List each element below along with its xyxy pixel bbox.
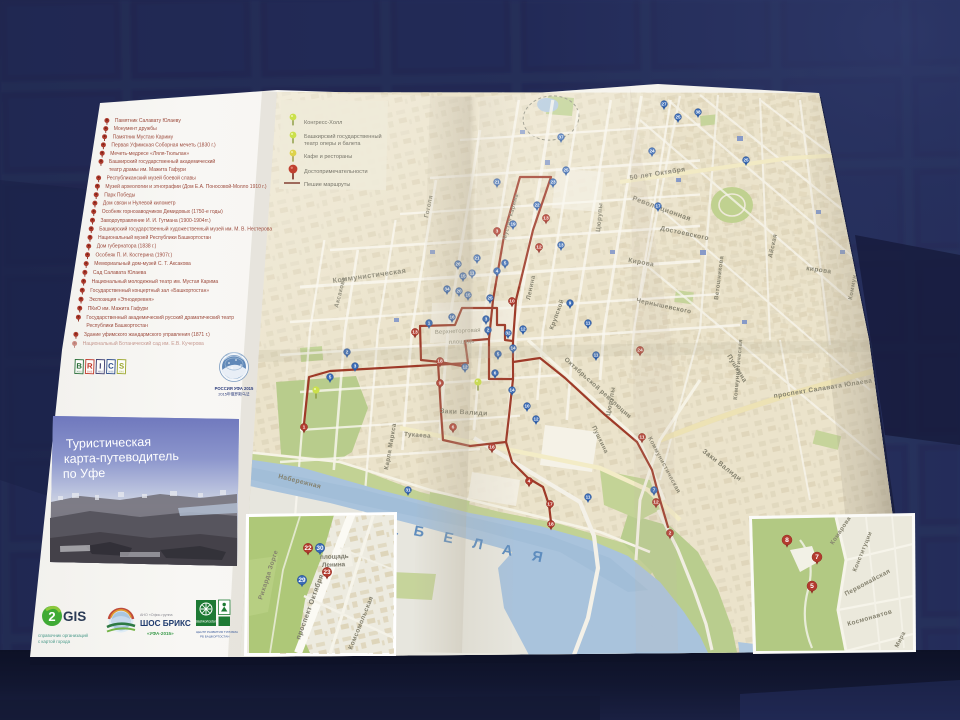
svg-text:Музей археологии и этнографии: Музей археологии и этнографии (Дом Е.А. … <box>105 183 267 190</box>
svg-text:Туристическая: Туристическая <box>66 435 151 451</box>
svg-text:РОССИЯ УФА 2015: РОССИЯ УФА 2015 <box>215 386 254 391</box>
svg-text:11: 11 <box>586 320 591 325</box>
svg-text:Парк Победы: Парк Победы <box>104 192 136 198</box>
svg-text:31: 31 <box>405 487 411 492</box>
svg-text:B: B <box>76 362 82 371</box>
svg-text:12: 12 <box>533 416 539 421</box>
svg-text:Bashkortostan: Bashkortostan <box>195 620 216 624</box>
svg-text:РБ БАШКОРТОСТАН: РБ БАШКОРТОСТАН <box>200 635 229 639</box>
svg-text:справочник организаций: справочник организаций <box>38 633 89 638</box>
svg-text:Особняк П. И. Костерина (1907г: Особняк П. И. Костерина (1907г.) <box>96 252 173 258</box>
svg-text:Башкирский государственный: Башкирский государственный <box>304 133 382 140</box>
svg-text:Республиканский музей боевой с: Республиканский музей боевой славы <box>107 175 197 182</box>
svg-text:театр драмы им. Мажита Гафури: театр драмы им. Мажита Гафури <box>109 167 186 173</box>
svg-text:17: 17 <box>547 502 553 508</box>
svg-text:Пешие маршруты: Пешие маршруты <box>304 182 350 188</box>
svg-text:Здание уфимского жандармского: Здание уфимского жандармского управления… <box>84 332 210 338</box>
svg-text:«УФА-2015»: «УФА-2015» <box>147 631 174 636</box>
svg-text:2015: 2015 <box>87 370 93 373</box>
svg-text:3: 3 <box>354 363 357 368</box>
svg-text:38: 38 <box>695 109 701 114</box>
svg-text:Первая Уфимская Соборная мечет: Первая Уфимская Соборная мечеть (1830 г.… <box>111 143 216 149</box>
svg-text:площадь: площадь <box>320 553 349 561</box>
svg-text:8: 8 <box>785 537 789 544</box>
svg-text:S: S <box>119 362 125 371</box>
svg-text:C: C <box>108 362 114 371</box>
svg-text:30: 30 <box>316 545 324 552</box>
svg-text:Национальный молодежный театр: Национальный молодежный театр им. Мустая… <box>92 278 219 285</box>
svg-text:2015: 2015 <box>108 370 114 373</box>
svg-text:25: 25 <box>675 114 681 119</box>
svg-text:2: 2 <box>48 609 55 624</box>
svg-text:4: 4 <box>528 479 531 485</box>
svg-text:22: 22 <box>304 545 312 552</box>
svg-text:ЦЕНТР РАЗВИТИЯ ТУРИЗМА: ЦЕНТР РАЗВИТИЯ ТУРИЗМА <box>196 630 238 634</box>
svg-text:5: 5 <box>810 583 814 590</box>
svg-text:Государственный концертный зал: Государственный концертный зал «Башкорто… <box>90 287 209 294</box>
svg-text:ШОС БРИКС: ШОС БРИКС <box>140 619 191 628</box>
svg-text:9: 9 <box>569 300 572 305</box>
svg-text:Заводоуправление И. И. Гутмана: Заводоуправление И. И. Гутмана (1900-190… <box>101 218 212 224</box>
svg-text:АНО «Офис-группа: АНО «Офис-группа <box>140 613 173 617</box>
svg-text:23: 23 <box>323 569 331 576</box>
svg-text:R: R <box>87 362 93 371</box>
svg-text:29: 29 <box>298 577 306 584</box>
svg-text:Кафе и рестораны: Кафе и рестораны <box>304 154 352 160</box>
svg-text:Башкирский государственный худ: Башкирский государственный художественны… <box>99 225 272 232</box>
svg-text:Монумент дружбы: Монумент дружбы <box>114 126 157 132</box>
svg-text:10: 10 <box>524 403 530 408</box>
svg-text:GIS: GIS <box>63 609 86 624</box>
svg-text:Национальный музей Республики: Национальный музей Республики Башкортост… <box>98 234 211 241</box>
svg-text:5: 5 <box>329 374 332 379</box>
svg-text:Дом связи и Нулевой километр: Дом связи и Нулевой километр <box>103 200 176 207</box>
svg-text:Мемориальный дом-музей С. Т. А: Мемориальный дом-музей С. Т. Аксакова <box>94 260 191 267</box>
svg-text:по Уфе: по Уфе <box>63 466 106 481</box>
svg-text:27: 27 <box>661 101 667 106</box>
svg-text:с картой города: с картой города <box>38 639 71 644</box>
svg-text:Особняк горнозаводчиков Демидо: Особняк горнозаводчиков Демидовых (1750-… <box>102 209 223 215</box>
svg-text:Памятник Салавату Юлаеву: Памятник Салавату Юлаеву <box>115 118 181 124</box>
svg-text:Государственный академический: Государственный академический русский др… <box>86 314 234 321</box>
svg-text:Национальный Ботанический сад: Национальный Ботанический сад им. Е.В. К… <box>83 340 204 347</box>
svg-text:Сад Салавата Юлаева: Сад Салавата Юлаева <box>93 270 146 276</box>
svg-text:12: 12 <box>520 326 526 331</box>
svg-text:2015: 2015 <box>76 370 82 373</box>
svg-text:2015: 2015 <box>119 370 125 373</box>
svg-text:11: 11 <box>586 494 591 499</box>
svg-text:Конгресс-Холл: Конгресс-Холл <box>304 120 342 126</box>
svg-text:2015年俄罗斯乌法: 2015年俄罗斯乌法 <box>218 392 249 397</box>
svg-text:25: 25 <box>743 157 749 162</box>
svg-text:Республики Башкортостан: Республики Башкортостан <box>86 323 148 329</box>
svg-text:Экспозиция «Этнодеревня»: Экспозиция «Этнодеревня» <box>89 297 154 303</box>
svg-text:18: 18 <box>548 522 554 528</box>
svg-text:Дом губернатора (1838 г.): Дом губернатора (1838 г.) <box>97 244 157 250</box>
svg-text:Мечеть-медресе «Ляля-Тюльпан»: Мечеть-медресе «Ляля-Тюльпан» <box>110 151 189 157</box>
svg-text:Башкирский государственный ака: Башкирский государственный академический <box>109 158 215 165</box>
svg-text:I: I <box>99 362 101 371</box>
svg-text:7: 7 <box>815 554 819 561</box>
svg-text:1: 1 <box>303 425 306 431</box>
svg-text:2015: 2015 <box>97 370 103 373</box>
svg-text:Достопримечательности: Достопримечательности <box>304 169 368 175</box>
svg-text:ПКиО им. Мажита Гафури: ПКиО им. Мажита Гафури <box>88 306 149 312</box>
svg-text:Памятник Мустаю Кариму: Памятник Мустаю Кариму <box>113 134 174 140</box>
svg-text:театр оперы и балета: театр оперы и балета <box>304 141 361 147</box>
